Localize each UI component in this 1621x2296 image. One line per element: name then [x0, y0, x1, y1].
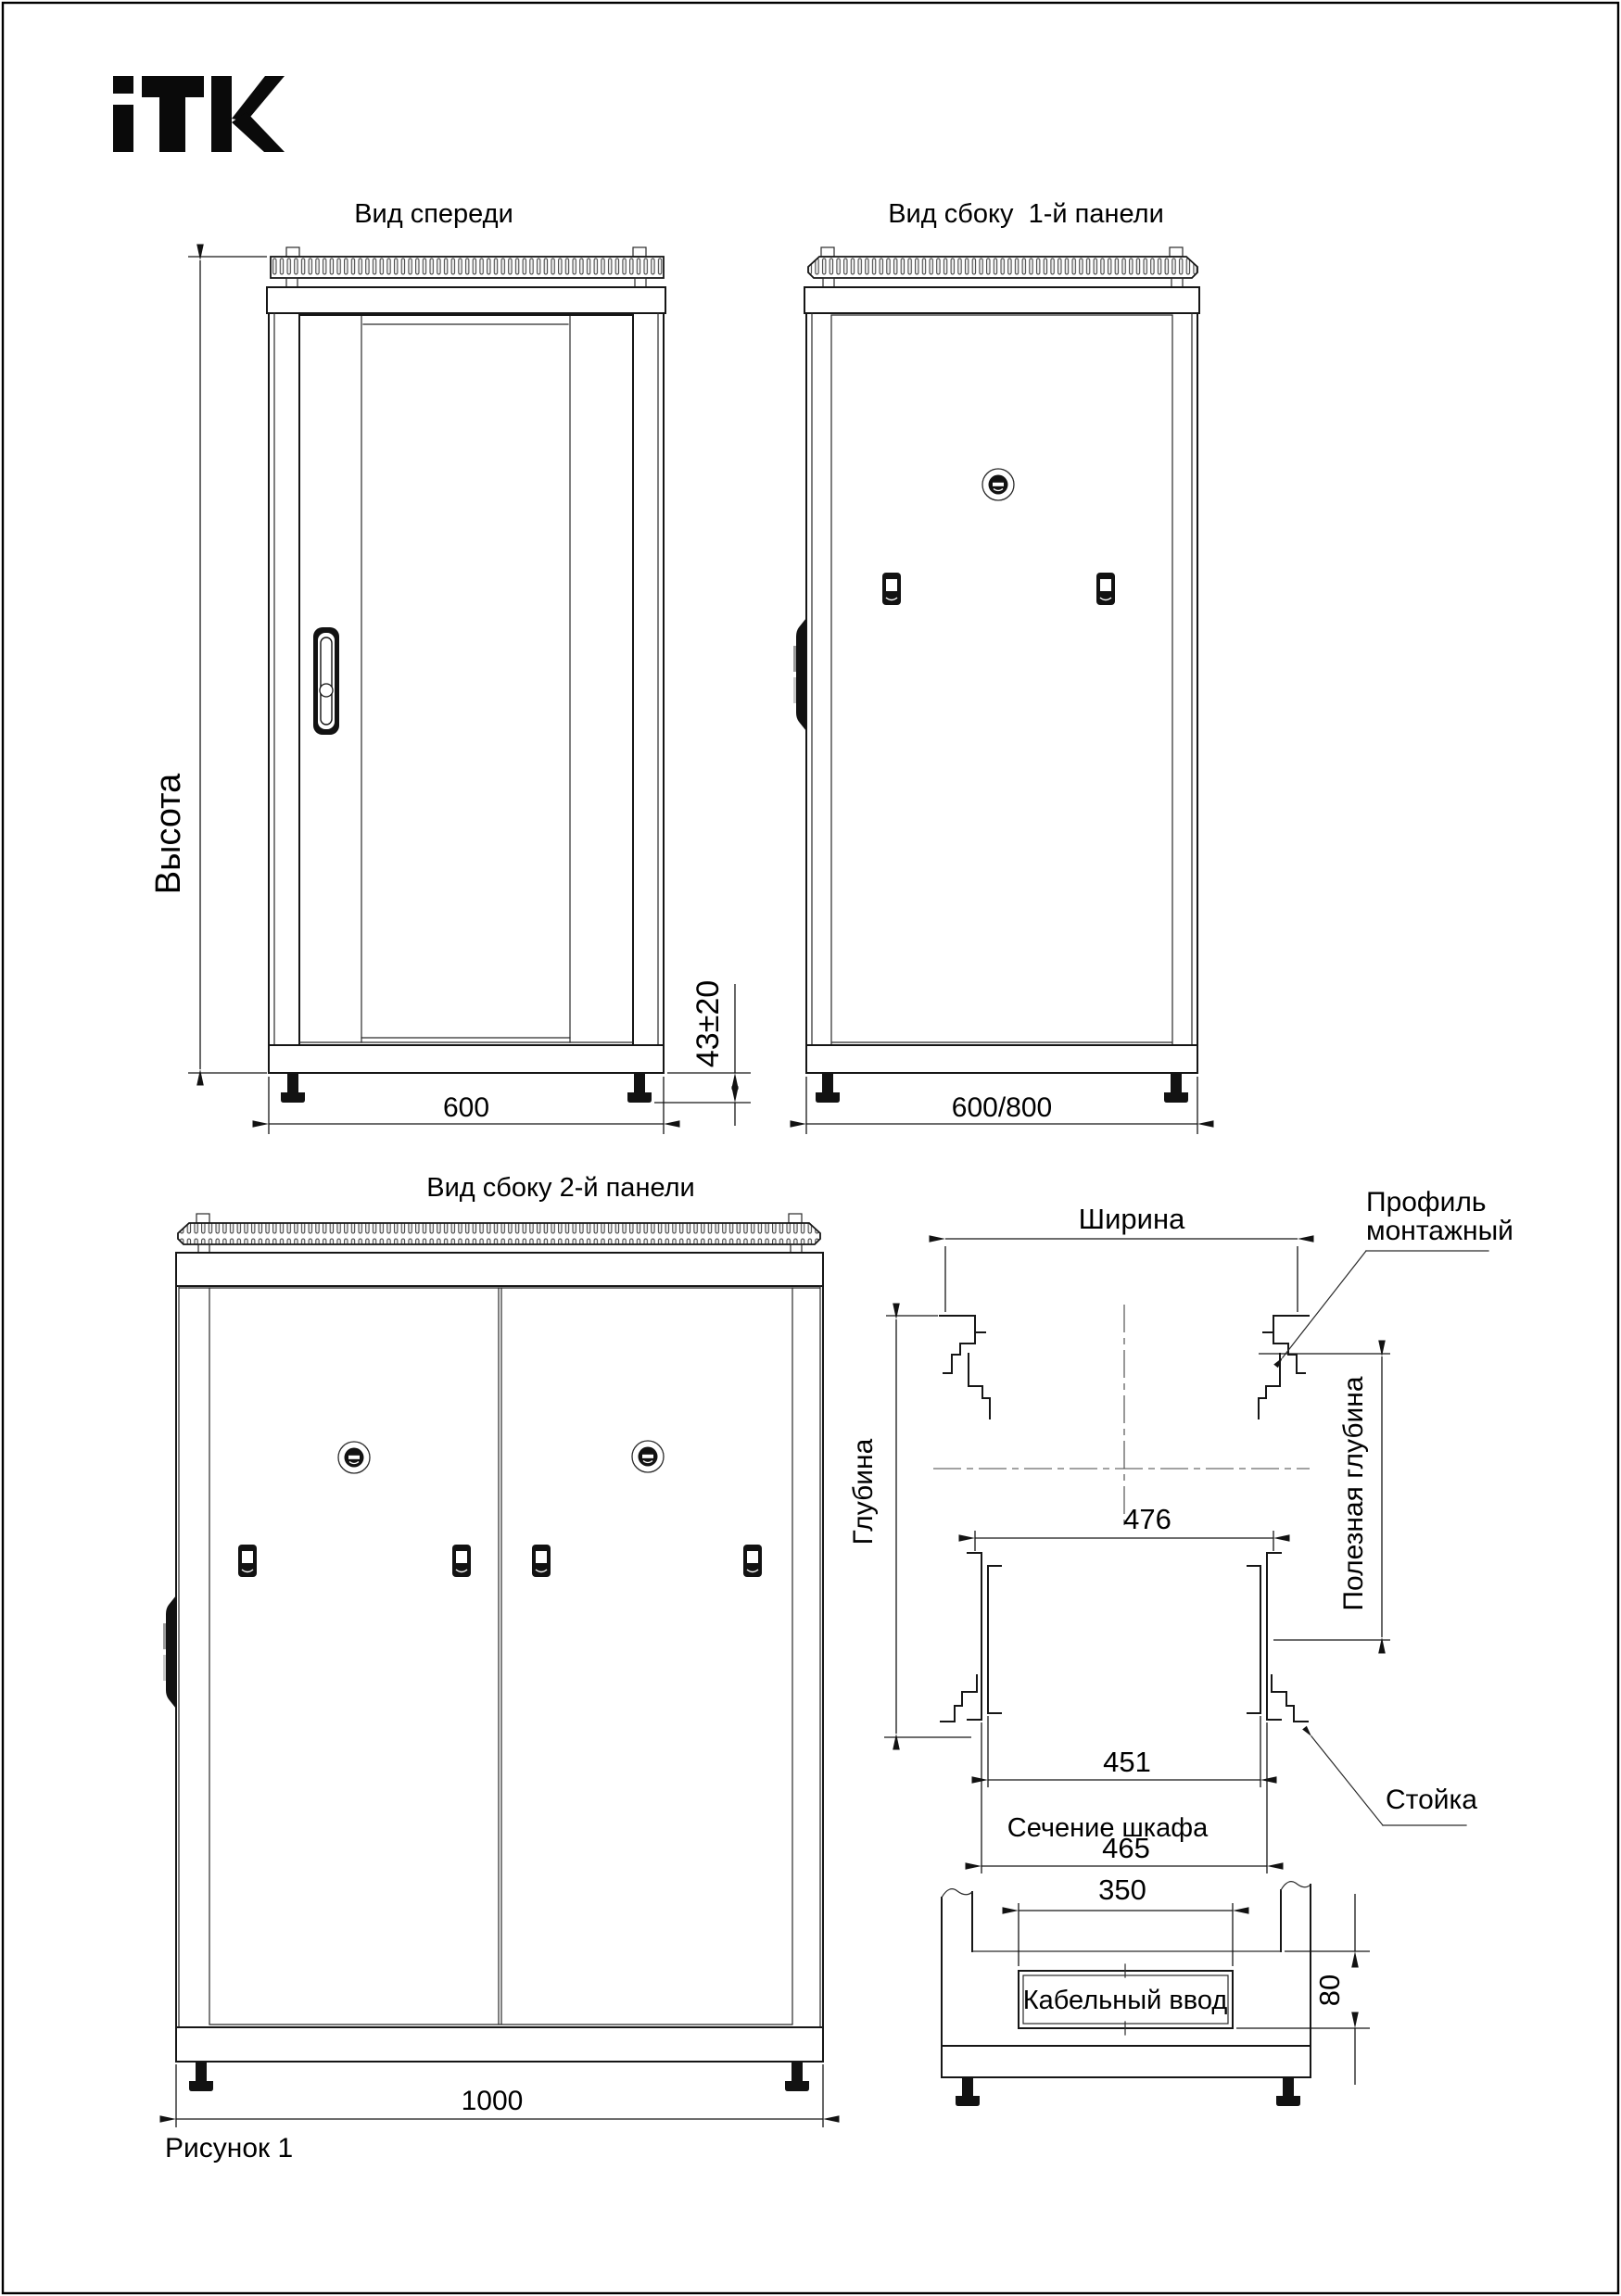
latch-icon — [452, 1545, 471, 1577]
dim-451: 451 — [988, 1716, 1260, 1787]
latch-icon — [532, 1545, 551, 1577]
top-tab — [633, 247, 646, 257]
handle-icon — [793, 618, 806, 731]
width-label: Ширина — [1079, 1203, 1185, 1235]
leveling-foot-icon — [1276, 2076, 1300, 2106]
useful-depth-dimension: Полезная глубина — [1259, 1354, 1390, 1640]
stand-callout: Стойка — [1311, 1736, 1477, 1825]
top-frame — [267, 287, 665, 313]
latch-icon — [1096, 573, 1115, 605]
top-section-view: Ширина Профиль монтажный Полезная глубин… — [848, 1187, 1513, 1873]
dim-451-value: 451 — [1103, 1746, 1151, 1778]
stand-label: Стойка — [1386, 1785, 1477, 1815]
itk-logo — [113, 76, 285, 152]
leveling-foot-icon — [956, 2076, 980, 2106]
cable-entry: Кабельный ввод — [1019, 1964, 1233, 2035]
vent-panel — [271, 257, 664, 278]
dim-350-value: 350 — [1098, 1873, 1146, 1906]
frame-profile — [940, 1316, 985, 1373]
vent-panel — [808, 257, 1197, 278]
stand-profile — [1272, 1675, 1308, 1722]
side1-depth-value: 600/800 — [952, 1092, 1052, 1123]
side-view-1: Вид сбоку 1-й панели 600/800 — [793, 199, 1199, 1134]
page-border — [3, 3, 1618, 2293]
rear-channel-wall — [1247, 1553, 1281, 1720]
side-view-2: Вид сбоку 2-й панели 1000 — [163, 1173, 823, 2127]
side2-title: Вид сбоку 2-й панели — [426, 1173, 695, 1203]
mounting-profile-callout: Профиль монтажный — [1283, 1187, 1513, 1357]
figure-caption: Рисунок 1 — [165, 2133, 293, 2164]
latch-icon — [743, 1545, 762, 1577]
cable-entry-label: Кабельный ввод — [1023, 1986, 1228, 2015]
lock-icon — [982, 469, 1014, 500]
leveling-foot-icon — [281, 1073, 305, 1103]
front-door — [299, 315, 633, 1045]
dim-80: 80 — [1236, 1894, 1370, 2085]
front-view-title: Вид спереди — [354, 199, 513, 229]
depth-label: Глубина — [848, 1438, 879, 1545]
datasheet-page: Вид спереди — [0, 0, 1621, 2296]
depth-dimension: Глубина — [848, 1316, 971, 1737]
dim-476-value: 476 — [1123, 1503, 1171, 1535]
mounting-profile-label-1: Профиль — [1366, 1187, 1487, 1217]
side1-title: Вид сбоку 1-й панели — [888, 199, 1164, 229]
dim-80-value: 80 — [1313, 1974, 1346, 2006]
side2-depth-value: 1000 — [462, 2086, 524, 2116]
cabinet-section-view: Сечение шкафа Кабельный ввод 350 80 — [942, 1813, 1370, 2106]
leveling-foot-icon — [816, 1073, 840, 1103]
mounting-profile-label-2: монтажный — [1366, 1216, 1513, 1246]
height-label: Высота — [149, 773, 188, 894]
height-dimension: Высота — [149, 257, 267, 1073]
mounting-profile — [1259, 1354, 1280, 1419]
leveling-foot-icon — [627, 1073, 652, 1103]
leveling-foot-icon — [785, 2062, 809, 2091]
top-tab — [286, 247, 299, 257]
front-width-dimension: 600 — [269, 1077, 664, 1134]
front-view: Вид спереди — [149, 199, 751, 1134]
leveling-foot-icon — [1164, 1073, 1188, 1103]
frame-profile — [1263, 1316, 1309, 1373]
dim-476: 476 — [975, 1503, 1273, 1551]
front-width-value: 600 — [443, 1092, 489, 1123]
latch-icon — [238, 1545, 257, 1577]
mounting-profile — [969, 1354, 990, 1419]
door-handle-icon — [313, 627, 339, 735]
useful-depth-label: Полезная глубина — [1338, 1376, 1369, 1610]
lock-icon — [632, 1441, 664, 1472]
vent-panel — [178, 1223, 820, 1244]
side1-depth-dimension: 600/800 — [806, 1077, 1197, 1134]
handle-icon — [163, 1596, 176, 1709]
foot-adjust-dimension: 43±20 — [654, 980, 751, 1126]
latch-icon — [882, 573, 901, 605]
cabinet-section-title: Сечение шкафа — [1007, 1813, 1209, 1843]
foot-adjust-value: 43±20 — [690, 980, 726, 1067]
stand-profile — [941, 1675, 977, 1722]
rear-channel-wall — [968, 1553, 1001, 1720]
width-dimension: Ширина — [945, 1203, 1298, 1312]
leveling-foot-icon — [189, 2062, 213, 2091]
lock-icon — [338, 1442, 370, 1473]
side2-depth-dimension: 1000 — [176, 2064, 823, 2127]
dim-350: 350 — [1019, 1873, 1233, 1966]
